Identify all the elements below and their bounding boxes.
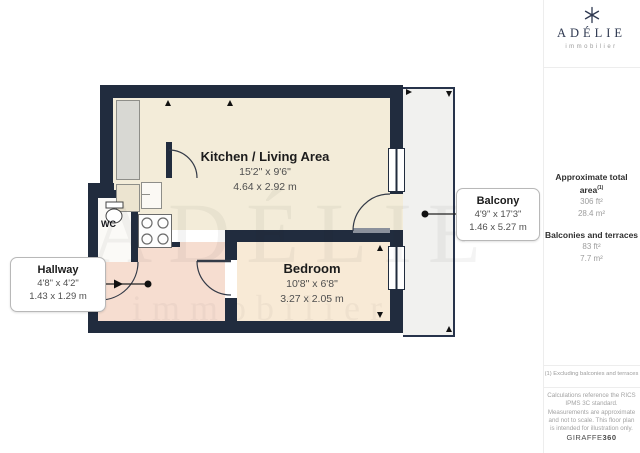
callout-name: Balcony — [461, 194, 535, 208]
callout-dim-metric: 1.43 x 1.29 m — [15, 290, 101, 303]
divider — [543, 67, 640, 68]
divider — [543, 387, 640, 388]
giraffe-360: 360 — [603, 433, 617, 442]
callout-dim-imperial: 4'8" x 4'2" — [15, 277, 101, 290]
wc-label: WC — [101, 219, 116, 229]
total-area-text: Approximate total area — [555, 172, 627, 195]
room-dim-metric: 3.27 x 2.05 m — [238, 292, 386, 307]
balconies-label: Balconies and terraces — [543, 230, 640, 241]
window — [388, 148, 405, 192]
brand-logo: ADÉLIE immobilier — [543, 6, 640, 50]
room-name: Bedroom — [238, 260, 386, 277]
room-dim-metric: 4.64 x 2.92 m — [165, 180, 365, 195]
callout-dim-metric: 1.46 x 5.27 m — [461, 221, 535, 234]
wall — [225, 242, 237, 260]
balconies-ft: 83 ft² — [543, 241, 640, 253]
callout-dim-imperial: 4'9" x 17'3" — [461, 208, 535, 221]
brand-name: ADÉLIE — [543, 26, 640, 41]
brand-tagline: immobilier — [543, 44, 640, 50]
sink-faucet — [141, 194, 150, 195]
kitchen-living-label: Kitchen / Living Area 15'2" x 9'6" 4.64 … — [165, 148, 365, 195]
footnote-marker: (1) — [597, 185, 603, 191]
divider — [543, 365, 640, 366]
snowflake-icon — [583, 6, 601, 24]
giraffe-text: GIRAFFE — [566, 433, 602, 442]
disclaimer: Calculations reference the RICS IPMS 3C … — [546, 392, 637, 434]
wall — [100, 85, 113, 190]
balcony-door-leaf — [353, 228, 390, 233]
balcony-floor — [403, 87, 455, 337]
room-name: Kitchen / Living Area — [165, 148, 365, 165]
stove — [138, 214, 172, 248]
room-dim-imperial: 10'8" x 6'8" — [238, 277, 386, 292]
floor-plan: ADÉLIE immobilier — [0, 0, 543, 453]
bedroom-label: Bedroom 10'8" x 6'8" 3.27 x 2.05 m — [238, 260, 386, 307]
giraffe360-logo: GIRAFFE360 — [543, 433, 640, 442]
total-area-m: 28.4 m² — [543, 208, 640, 220]
room-dim-imperial: 15'2" x 9'6" — [165, 165, 365, 180]
total-area-ft: 306 ft² — [543, 196, 640, 208]
area-summary: Approximate total area(1) 306 ft² 28.4 m… — [543, 172, 640, 265]
callout-name: Hallway — [15, 263, 101, 277]
footnote: (1) Excluding balconies and terraces — [543, 371, 640, 377]
kitchen-sink — [141, 182, 162, 209]
cabinet — [116, 184, 140, 212]
balconies-m: 7.7 m² — [543, 253, 640, 265]
wall — [100, 85, 403, 98]
closet — [116, 100, 140, 180]
wall — [225, 298, 237, 321]
total-area-label: Approximate total area(1) — [543, 172, 640, 196]
balcony-callout: Balcony 4'9" x 17'3" 1.46 x 5.27 m — [456, 188, 540, 241]
balcony-door-opening — [390, 194, 403, 230]
hallway-callout: Hallway 4'8" x 4'2" 1.43 x 1.29 m — [10, 257, 106, 312]
wall — [88, 321, 403, 333]
floorplan-page: ADÉLIE immobilier — [0, 0, 640, 453]
window — [388, 246, 405, 290]
